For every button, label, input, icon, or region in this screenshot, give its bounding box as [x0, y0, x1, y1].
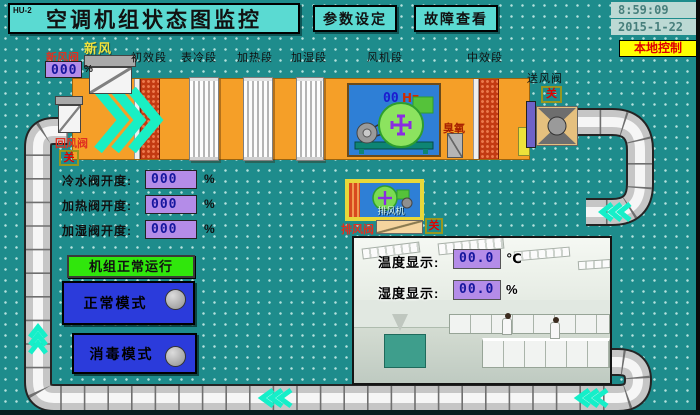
humidity-label: 湿度显示:	[378, 283, 439, 302]
heating-valve-unit: %	[204, 197, 215, 211]
return-valve-state: 关	[59, 150, 79, 166]
exhaust-fan-unit: 排风机	[345, 179, 424, 221]
cooling-coil-icon	[189, 77, 219, 161]
heating-valve-label: 加热阀开度:	[62, 197, 132, 214]
fresh-air-valve-unit: %	[84, 64, 93, 75]
temperature-unit: ℃	[506, 251, 522, 267]
normal-mode-button[interactable]: 正常模式	[62, 281, 195, 325]
humidity-unit: %	[506, 282, 518, 297]
return-air-damper-icon	[58, 105, 81, 133]
disinfect-mode-label: 消毒模式	[90, 344, 154, 364]
clock-time: 8:59:09	[611, 2, 697, 18]
local-control-badge: 本地控制	[619, 40, 697, 57]
parameter-setting-button[interactable]: 参数设定	[313, 5, 397, 32]
intake-airflow-chevrons-icon	[93, 87, 169, 153]
disinfect-mode-button[interactable]: 消毒模式	[72, 333, 197, 374]
humidifier-coil-icon	[296, 77, 324, 161]
fault-view-button[interactable]: 故障查看	[414, 5, 498, 32]
humidify-valve-label: 加湿阀开度:	[62, 222, 132, 239]
exhaust-filter-icon	[349, 183, 360, 217]
section-label-cooling: 表冷段	[181, 49, 217, 65]
return-valve-label: 回风阀	[55, 135, 88, 151]
chilled-water-valve-unit: %	[204, 172, 215, 186]
photo-equipment	[384, 334, 426, 368]
section-label-humidify: 加湿段	[291, 49, 327, 65]
ozone-generator-icon	[447, 133, 463, 158]
fresh-air-damper-icon	[89, 67, 132, 94]
screen-edge	[696, 0, 700, 415]
page-title-box: HU-2 空调机组状态图监控	[8, 3, 300, 34]
exhaust-damper-icon	[376, 220, 423, 234]
disinfect-mode-indicator-light	[165, 346, 186, 367]
exhaust-valve-state: 关	[425, 218, 443, 234]
section-label-midfilter: 中效段	[467, 49, 503, 65]
normal-mode-indicator-light	[165, 289, 186, 310]
normal-mode-label: 正常模式	[84, 293, 148, 313]
temperature-label: 温度显示:	[378, 252, 439, 271]
fan-section-panel: 00 Hz	[347, 83, 441, 157]
midfilter-media-icon	[479, 79, 499, 159]
fresh-air-label: 新风	[84, 38, 112, 57]
return-damper-cap-icon	[55, 96, 83, 105]
section-label-heating: 加热段	[237, 49, 273, 65]
unit-id: HU-2	[13, 6, 32, 15]
supply-valve-state: 关	[541, 86, 562, 103]
exhaust-valve-label: 排风阀	[341, 221, 374, 237]
screen-edge	[0, 410, 700, 415]
hmi-screen: HU-2 空调机组状态图监控 参数设定 故障查看 8:59:09 2015-1-…	[0, 0, 700, 415]
heating-valve-value: 000	[145, 195, 197, 214]
temperature-value: 00.0	[453, 249, 501, 269]
section-label-prefilter: 初效段	[131, 49, 167, 65]
supply-valve-label: 送风阀	[527, 70, 563, 86]
clock-date: 2015-1-22	[611, 19, 697, 35]
fresh-air-valve-value: 000	[45, 61, 82, 78]
chilled-water-valve-label: 冷水阀开度:	[62, 172, 132, 189]
page-title: 空调机组状态图监控	[46, 4, 262, 34]
supply-fan-icon: 00 Hz	[349, 85, 439, 155]
section-label-fan: 风机段	[367, 49, 403, 65]
humidify-valve-unit: %	[204, 222, 215, 236]
heating-coil-icon	[243, 77, 273, 161]
unit-running-status: 机组正常运行	[67, 255, 195, 278]
exhaust-fan-label: 排风机	[362, 204, 420, 217]
supply-valve-icon	[536, 106, 578, 146]
humidify-valve-value: 000	[145, 220, 197, 239]
chilled-water-valve-value: 000	[145, 170, 197, 189]
ozone-label: 臭氧	[443, 120, 465, 136]
humidity-value: 00.0	[453, 280, 501, 300]
valve-flange-icon	[526, 101, 536, 148]
